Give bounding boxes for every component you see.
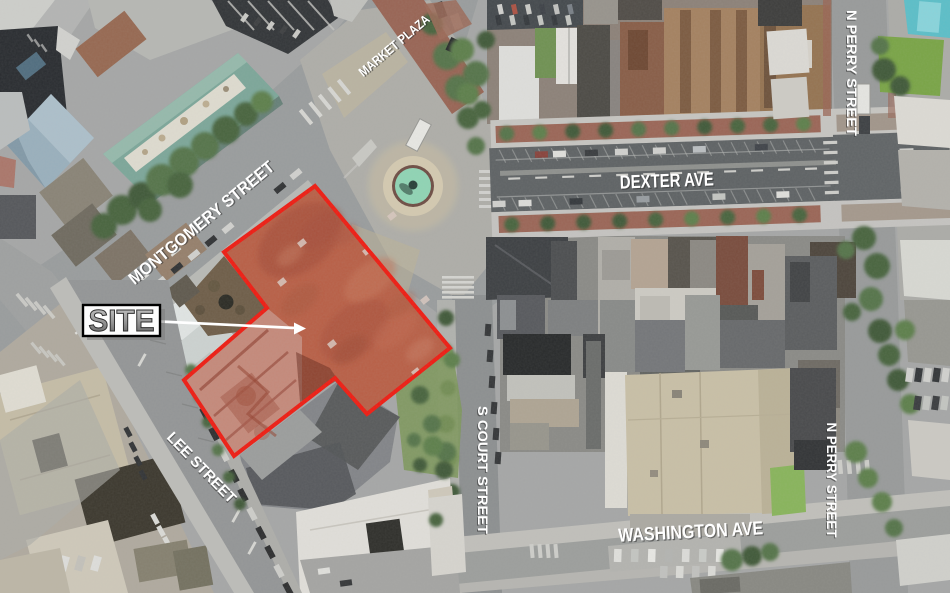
svg-text:S COURT STREET: S COURT STREET (475, 406, 491, 534)
svg-text:N PERRY STREET: N PERRY STREET (824, 423, 840, 538)
svg-text:SITE: SITE (89, 303, 155, 338)
svg-text:DEXTER AVE: DEXTER AVE (619, 169, 714, 193)
svg-text:N PERRY STREET: N PERRY STREET (844, 10, 860, 136)
